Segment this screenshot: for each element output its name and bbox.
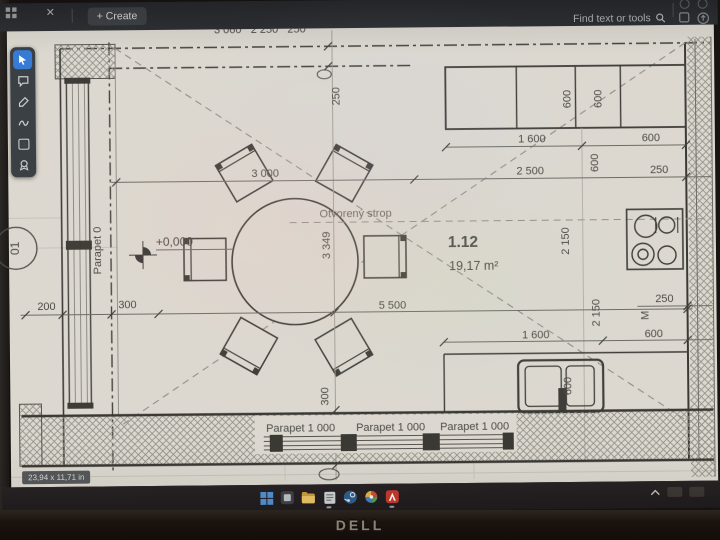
wall-hatch-topleft	[55, 44, 115, 79]
create-tab-button[interactable]: + Create	[88, 7, 147, 26]
help-icon[interactable]	[680, 0, 690, 9]
search-icon	[656, 13, 666, 23]
add-text-tool[interactable]: A	[14, 134, 33, 153]
notifications-icon[interactable]	[698, 0, 708, 9]
dim-sink-600: 600	[562, 377, 574, 395]
taskbar-icon-widgets[interactable]	[279, 490, 295, 506]
monitor-photo: 3 060 2 250 250	[0, 0, 720, 540]
dim-mid-600: 600	[589, 154, 601, 172]
level-label: +0,000	[156, 235, 193, 249]
room-area: 19,17 m²	[449, 259, 498, 273]
taskbar-icon-steam[interactable]	[342, 489, 358, 505]
label-m: M	[640, 311, 652, 320]
tray-chevron-icon[interactable]	[650, 489, 660, 496]
stamp-tool[interactable]	[14, 155, 33, 174]
parapet-window-1: Parapet 1 000	[266, 422, 335, 435]
dim-250-right: 250	[650, 164, 668, 176]
comment-tool[interactable]	[13, 71, 32, 90]
pages-icon[interactable]	[679, 12, 690, 23]
open-app-indicator	[389, 506, 394, 508]
find-text-label: Find text or tools	[573, 12, 651, 25]
dim-low-1600: 1 600	[522, 329, 550, 341]
taskbar-apps	[258, 489, 400, 506]
room-number: 1.12	[448, 234, 478, 251]
parapet-window-2: Parapet 1 000	[356, 421, 425, 434]
share-icon[interactable]	[697, 12, 710, 25]
dim-2500: 2 500	[516, 165, 544, 177]
monitor-brand-logo: DELL	[336, 517, 385, 533]
screen: 3 060 2 250 250	[0, 0, 720, 513]
dim-600-top: 600	[642, 132, 660, 144]
dim-2150-b: 2 150	[590, 299, 602, 327]
parapet-window-3: Parapet 1 000	[440, 421, 509, 434]
highlight-tool[interactable]	[13, 92, 32, 111]
taskbar-icon-acrobat[interactable]	[384, 489, 400, 505]
titlebar-divider	[72, 9, 73, 23]
dim-200: 200	[37, 301, 55, 313]
dim-cook-250: 250	[655, 293, 673, 305]
tray-icon-b[interactable]	[689, 487, 704, 497]
taskbar-icon-notepad[interactable]	[321, 489, 337, 505]
dim-300: 300	[118, 299, 136, 311]
dim-3349: 3 349	[321, 231, 333, 259]
dim-low-600: 600	[645, 328, 663, 340]
dim-5500: 5 500	[379, 300, 407, 312]
monitor-bezel: DELL	[0, 510, 720, 540]
tab-close-button[interactable]: ✕	[46, 6, 55, 19]
find-text-button[interactable]: Find text or tools	[573, 12, 666, 25]
parapet-left-label: Parapet 0	[92, 227, 104, 275]
page-size-badge: 23,94 x 11,71 in	[22, 471, 90, 485]
select-tool[interactable]	[13, 50, 32, 69]
draw-tool[interactable]	[14, 113, 33, 132]
dim-1600-top: 1 600	[518, 133, 546, 145]
titlebar-divider-2	[673, 3, 674, 17]
tray-icon-a[interactable]	[667, 487, 682, 497]
taskbar-icon-start[interactable]	[258, 490, 274, 506]
quick-tools-toolbar: A	[10, 47, 36, 177]
pdf-canvas[interactable]: 3 060 2 250 250	[0, 19, 720, 488]
page-size-value: 23,94 x 11,71 in	[28, 473, 84, 483]
svg-text:01: 01	[8, 241, 22, 255]
dim-2150-a: 2 150	[560, 227, 572, 255]
dim-cab-600a: 600	[561, 90, 573, 108]
dim-3000: 3 000	[251, 168, 279, 180]
app-menu-icon[interactable]	[6, 7, 17, 18]
svg-text:A: A	[21, 140, 27, 149]
dim-bottom-300: 300	[319, 387, 331, 405]
taskbar-icon-photos[interactable]	[363, 489, 379, 505]
dim-250-top: 250	[330, 87, 342, 105]
taskbar-tray	[650, 487, 704, 498]
open-app-indicator	[326, 506, 331, 508]
taskbar-icon-file-explorer[interactable]	[300, 489, 316, 505]
dim-cab-600b: 600	[592, 89, 604, 107]
ceiling-label: Otvorený strop	[319, 208, 391, 221]
